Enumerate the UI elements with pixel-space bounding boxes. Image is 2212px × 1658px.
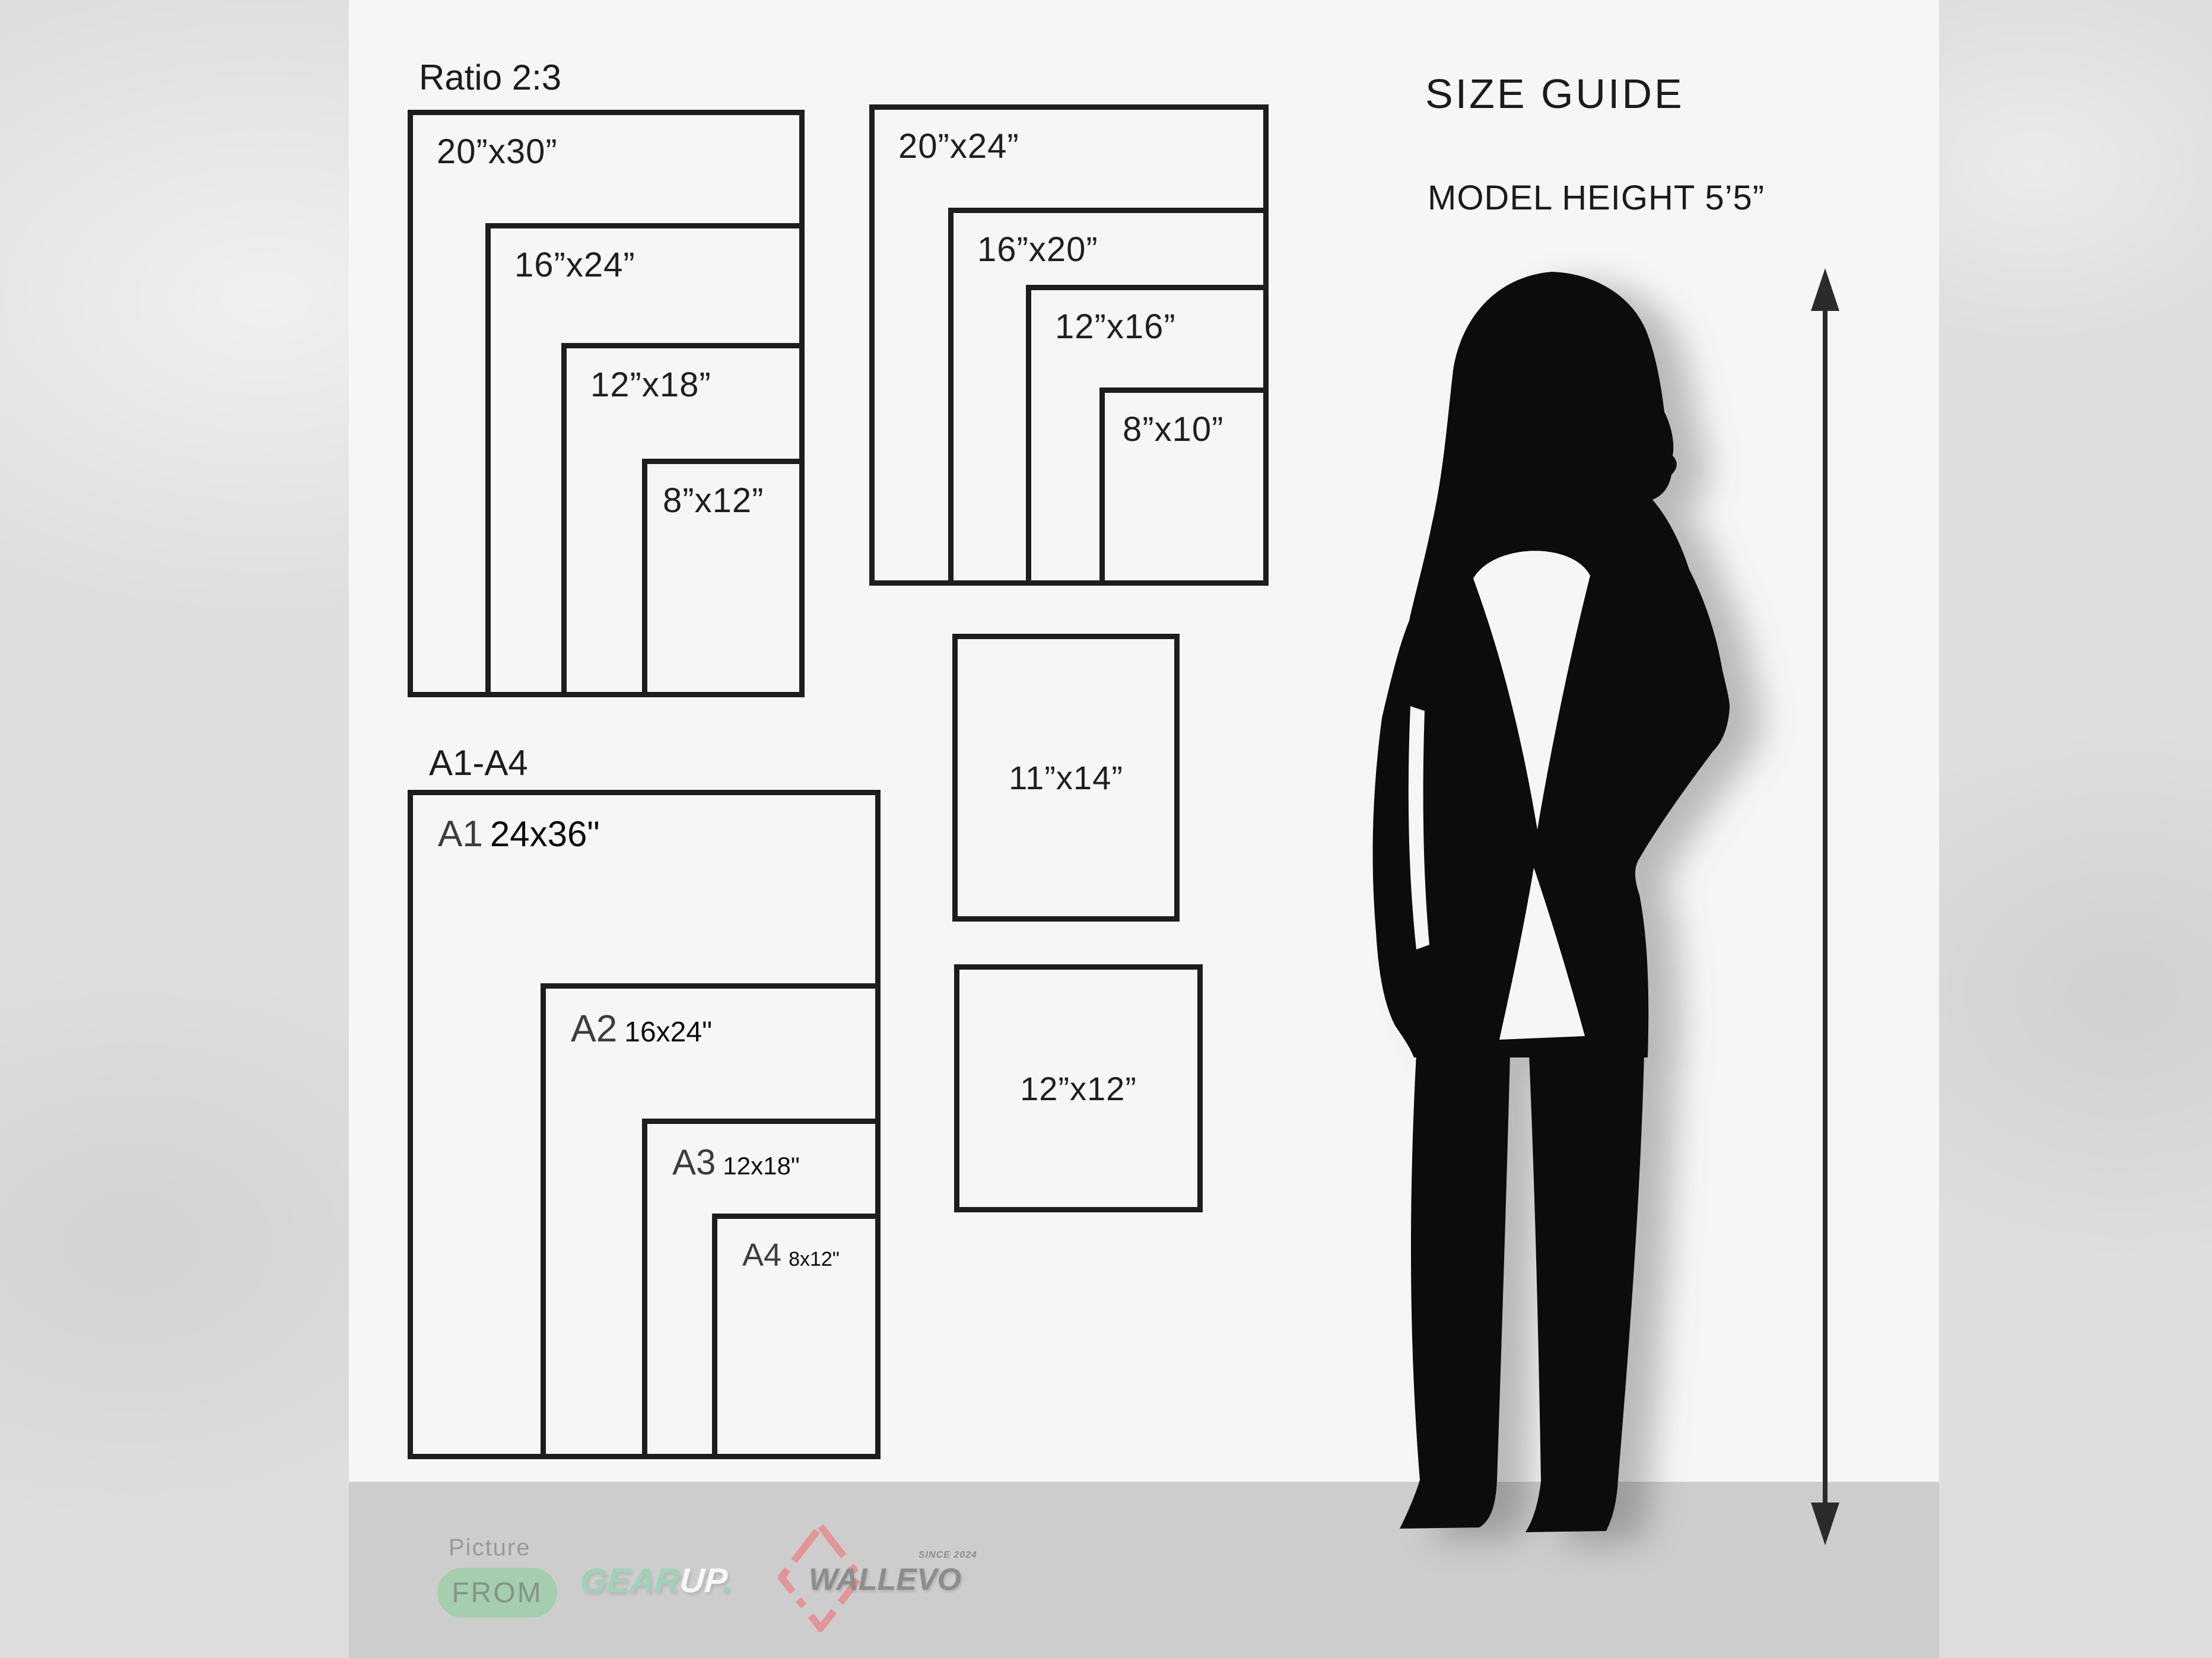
frame-label: A4 8x12" [742,1237,840,1273]
a-size-inches: 12x18" [723,1152,799,1180]
a-size-inches: 16x24" [624,1016,712,1049]
a-size-prefix: A3 [672,1142,716,1183]
a-size-prefix: A2 [571,1006,617,1050]
frame-label: A2 16x24" [571,1006,712,1050]
frame-label: 20”x24” [898,126,1019,166]
wallevo-logo: WALLEVO [809,1562,961,1597]
a-group-title: A1-A4 [429,742,528,783]
a-size-prefix: A4 [742,1237,781,1273]
ratio-group-title: Ratio 2:3 [419,57,561,98]
frame-label: 8”x12” [663,481,764,520]
frame-label: 8”x10” [1123,409,1223,449]
frame-8x12: 8”x12” [642,459,805,697]
a-size-prefix: A1 [438,813,483,855]
frame-label: 11”x14” [1009,758,1123,797]
a-size-inches: 8x12" [789,1248,840,1271]
model-silhouette [1320,267,1759,1546]
wallevo-since-label: SINCE 2024 [919,1550,977,1561]
frame-label: A1 24x36" [438,813,600,855]
from-badge: FROM [437,1568,557,1618]
size-guide-title: SIZE GUIDE [1425,70,1685,117]
frame-label: 16”x20” [977,230,1098,269]
frame-label: 12”x16” [1055,307,1176,347]
gearup-gear: GEAR [579,1561,681,1600]
frame-8x10: 8”x10” [1099,387,1269,586]
size-guide-infographic: Ratio 2:3 20”x30” 16”x24” 12”x18” 8”x12”… [0,0,2212,1658]
frame-12x12: 12”x12” [954,964,1203,1212]
gearup-logo: GEARUP. [579,1561,734,1600]
model-height-label: MODEL HEIGHT 5’5” [1428,178,1765,218]
picture-label: Picture [449,1535,531,1561]
height-arrow [1804,268,1846,1545]
gearup-up: UP [678,1561,724,1600]
frame-label: 12”x18” [590,365,711,405]
frame-a4: A4 8x12" [712,1214,881,1459]
frame-label: A3 12x18" [672,1142,800,1183]
frame-label: 16”x24” [514,245,635,285]
from-label: FROM [452,1577,542,1609]
frame-label: 12”x12” [1020,1069,1137,1108]
frame-label: 20”x30” [437,132,558,171]
a-size-inches: 24x36" [490,814,600,855]
frame-11x14: 11”x14” [952,634,1180,922]
